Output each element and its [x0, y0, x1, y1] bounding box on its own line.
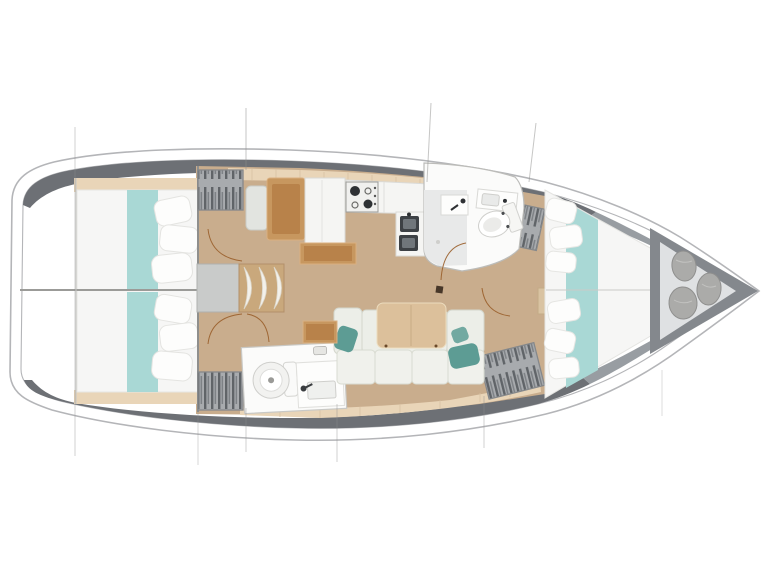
- chart-table-top: [272, 184, 300, 234]
- faucet-icon: [407, 213, 411, 217]
- shower-bench: [441, 195, 468, 215]
- forward-head: [424, 163, 524, 271]
- bow-locker: [650, 228, 758, 354]
- shroud-line-2: [529, 123, 536, 182]
- aft-cabin-top: [74, 178, 200, 290]
- aft-cabin-bottom: [74, 290, 200, 404]
- galley-lower-counter-top: [304, 246, 352, 261]
- engine-box: [197, 264, 240, 312]
- aft-head: [241, 342, 346, 413]
- wardrobe-aft-bottom: [198, 372, 243, 410]
- refrigerator: [305, 178, 345, 244]
- side-table-top: [306, 324, 334, 340]
- shower-drain-icon: [436, 240, 440, 244]
- yacht-floor-plan: Sailing yacht interior layout — top-view…: [0, 0, 768, 576]
- toilet: [252, 361, 298, 399]
- mast-foot: [435, 286, 443, 294]
- shower-faucet-icon: [461, 199, 466, 204]
- double-sink: [399, 213, 419, 252]
- dining-table: [377, 303, 446, 348]
- floor-plan-page: Sailing yacht interior layout — top-view…: [0, 0, 768, 576]
- berth-runner: [127, 292, 158, 392]
- wardrobe-aft-top: [198, 170, 243, 210]
- companionway: [197, 264, 284, 312]
- stove: [346, 182, 378, 212]
- vent-grille-icon: [313, 346, 326, 355]
- nav-seat: [246, 186, 268, 230]
